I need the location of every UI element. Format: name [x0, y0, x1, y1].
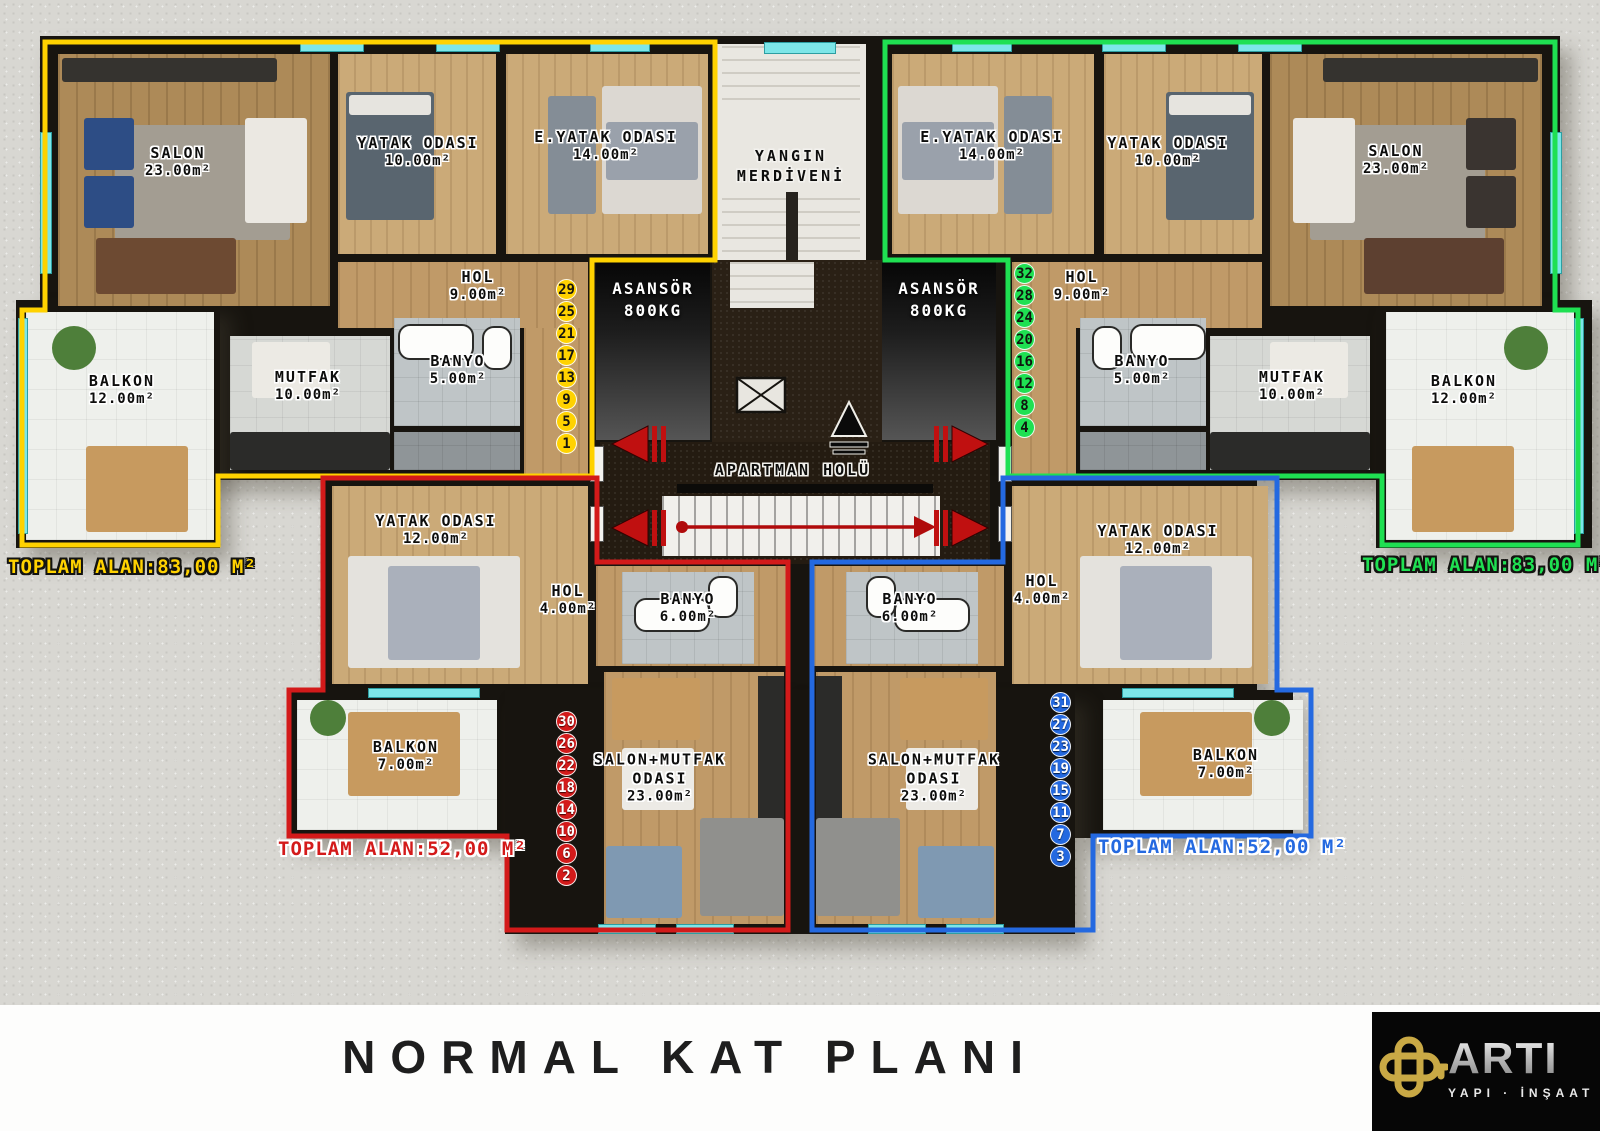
unit-number: 29 — [556, 279, 577, 300]
entry-tl — [394, 432, 520, 470]
unit-number: 7 — [1050, 824, 1071, 845]
room-name: SALON — [145, 144, 211, 163]
rug — [918, 846, 994, 918]
unit-number: 2 — [556, 865, 577, 886]
entry-tr — [1080, 432, 1206, 470]
unit-number: 10 — [556, 821, 577, 842]
floor-plan: SALON 23.00m² YATAK ODASI 10.00m² E.YATA… — [0, 0, 1600, 1131]
unit-stack-yellow: 29 25 21 17 13 9 5 1 — [556, 279, 577, 454]
room-area: 7.00m² — [373, 757, 439, 775]
room-name: YATAK ODASI — [1107, 134, 1228, 153]
pillow — [1169, 95, 1251, 115]
room-name: BALKON — [1431, 372, 1497, 391]
unit-number: 15 — [1050, 780, 1071, 801]
room-name: HOL — [1014, 572, 1071, 591]
room-area: 23.00m² — [145, 163, 211, 181]
stair-divider — [786, 192, 798, 262]
room-name: SALON+MUTFAK — [868, 751, 1000, 770]
label-banyo-tl: BANYO 5.00m² — [430, 352, 487, 388]
total-area-top-right: TOPLAM ALAN:83,00 M² — [1362, 554, 1600, 576]
room-area: 6.00m² — [660, 609, 717, 627]
room-name: YATAK ODASI — [375, 512, 496, 531]
label-hol-bl: HOL 4.00m² — [540, 582, 597, 618]
room-area: 4.00m² — [1014, 591, 1071, 609]
unit-number: 17 — [556, 345, 577, 366]
room-area: 10.00m² — [357, 153, 478, 171]
room-area: 23.00m² — [594, 788, 726, 806]
unit-number: 12 — [1014, 373, 1035, 394]
media-wall — [62, 58, 277, 82]
window — [1550, 132, 1562, 274]
toilet — [482, 326, 512, 370]
elevator-line2: 800KG — [898, 300, 979, 322]
window — [952, 40, 1012, 52]
room-area: 4.00m² — [540, 601, 597, 619]
armchair — [1466, 176, 1516, 228]
total-area-top-left: TOPLAM ALAN:83,00 M² — [8, 556, 257, 578]
unit-stack-red: 30 26 22 18 14 10 6 2 — [556, 711, 577, 886]
unit-number: 16 — [1014, 351, 1035, 372]
unit-number: 30 — [556, 711, 577, 732]
total-area-bottom-right: TOPLAM ALAN:52,00 M² — [1098, 836, 1347, 858]
armchair — [84, 176, 134, 228]
window — [598, 924, 656, 934]
unit-number: 13 — [556, 367, 577, 388]
room-name: YATAK ODASI — [357, 134, 478, 153]
unit-number: 5 — [556, 411, 577, 432]
room-area: 23.00m² — [868, 788, 1000, 806]
dining-table — [612, 678, 700, 740]
room-area: 10.00m² — [1107, 153, 1228, 171]
plant — [1504, 326, 1548, 370]
unit-number: 4 — [1014, 417, 1035, 438]
sofa — [96, 238, 236, 294]
dining-table — [245, 118, 307, 223]
page-title: NORMAL KAT PLANI — [0, 1030, 1380, 1084]
label-yatak-bl: YATAK ODASI 12.00m² — [375, 512, 496, 548]
kitchen-counter-bl — [758, 676, 784, 826]
unit-number: 25 — [556, 301, 577, 322]
room-name: MUTFAK — [1259, 368, 1325, 387]
label-banyo-tr: BANYO 5.00m² — [1114, 352, 1171, 388]
plant — [310, 700, 346, 736]
plant — [1254, 700, 1290, 736]
label-banyo-bl: BANYO 6.00m² — [660, 590, 717, 626]
label-yatak-br: YATAK ODASI 12.00m² — [1097, 522, 1218, 558]
plant — [52, 326, 96, 370]
label-lobby: APARTMAN HOLÜ — [715, 460, 871, 480]
logo-subtitle: YAPI · İNŞAAT — [1448, 1086, 1594, 1100]
label-mutfak-tl: MUTFAK 10.00m² — [275, 368, 341, 404]
room-name: YATAK ODASI — [1097, 522, 1218, 541]
unit-number: 6 — [556, 843, 577, 864]
balcony-table — [86, 446, 188, 532]
unit-number: 1 — [556, 433, 577, 454]
room-name: BANYO — [882, 590, 939, 609]
label-yatak-tl: YATAK ODASI 10.00m² — [357, 134, 478, 170]
unit-number: 22 — [556, 755, 577, 776]
room-area: 5.00m² — [1114, 371, 1171, 389]
unit-number: 20 — [1014, 329, 1035, 350]
window — [40, 132, 52, 274]
elevator-line1: ASANSÖR — [612, 278, 693, 300]
room-name: BALKON — [1193, 746, 1259, 765]
room-area: 14.00m² — [534, 147, 677, 165]
stair-treads-top — [722, 46, 860, 108]
window — [1238, 40, 1302, 52]
window — [1122, 688, 1234, 698]
rug — [606, 846, 682, 918]
label-balkon-bl: BALKON 7.00m² — [373, 738, 439, 774]
room-area: 6.00m² — [882, 609, 939, 627]
label-salon-tr: SALON 23.00m² — [1363, 142, 1429, 178]
label-salon-tl: SALON 23.00m² — [145, 144, 211, 180]
label-balkon-br: BALKON 7.00m² — [1193, 746, 1259, 782]
room-area: 14.00m² — [920, 147, 1063, 165]
armchair — [84, 118, 134, 170]
label-balkon-tr: BALKON 12.00m² — [1431, 372, 1497, 408]
room-area: 10.00m² — [275, 387, 341, 405]
company-logo: ARTI YAPI · İNŞAAT — [1372, 1012, 1600, 1131]
room-name: BANYO — [660, 590, 717, 609]
total-area-bottom-left: TOPLAM ALAN:52,00 M² — [278, 838, 527, 860]
window — [764, 42, 836, 54]
unit-stack-blue: 31 27 23 19 15 11 7 3 — [1050, 692, 1071, 867]
media-wall — [1323, 58, 1538, 82]
unit-number: 31 — [1050, 692, 1071, 713]
window — [946, 924, 1004, 934]
unit-number: 21 — [556, 323, 577, 344]
window — [1102, 40, 1166, 52]
room-area: 7.00m² — [1193, 765, 1259, 783]
unit-number: 11 — [1050, 802, 1071, 823]
lobby-text: APARTMAN HOLÜ — [715, 461, 871, 479]
room-name: SALON — [1363, 142, 1429, 161]
label-yatak-tr: YATAK ODASI 10.00m² — [1107, 134, 1228, 170]
window — [868, 924, 926, 934]
window — [436, 40, 500, 52]
fire-escape-line1: YANGIN — [737, 146, 845, 166]
label-mutfak-tr: MUTFAK 10.00m² — [1259, 368, 1325, 404]
room-name: BALKON — [89, 372, 155, 391]
room-name: SALON+MUTFAK — [594, 751, 726, 770]
stair-treads-lower — [730, 262, 814, 308]
unit-number: 32 — [1014, 263, 1035, 284]
unit-number: 26 — [556, 733, 577, 754]
kitchen-counter — [230, 432, 390, 470]
sofa — [816, 818, 900, 916]
armchair — [1466, 118, 1516, 170]
room-name: BALKON — [373, 738, 439, 757]
elevator-line2: 800KG — [612, 300, 693, 322]
room-area: 9.00m² — [1054, 287, 1111, 305]
window — [300, 40, 364, 52]
fire-escape-line2: MERDİVENİ — [737, 166, 845, 186]
door — [998, 506, 1012, 542]
sofa — [1364, 238, 1504, 294]
lobby-stairs — [662, 496, 940, 556]
label-fire-escape: YANGIN MERDİVENİ — [737, 146, 845, 187]
unit-number: 27 — [1050, 714, 1071, 735]
room-name: BANYO — [1114, 352, 1171, 371]
unit-number: 18 — [556, 777, 577, 798]
room-area: 12.00m² — [375, 531, 496, 549]
label-hol-tl: HOL 9.00m² — [450, 268, 507, 304]
room-name: MUTFAK — [275, 368, 341, 387]
window — [590, 40, 650, 52]
label-hol-tr: HOL 9.00m² — [1054, 268, 1111, 304]
unit-number: 9 — [556, 389, 577, 410]
door — [590, 506, 604, 542]
sofa — [700, 818, 784, 916]
label-eyatak-tr: E.YATAK ODASI 14.00m² — [920, 128, 1063, 164]
room-name: HOL — [1054, 268, 1111, 287]
door — [590, 446, 604, 482]
room-area: 9.00m² — [450, 287, 507, 305]
lobby-stair-edge — [677, 484, 933, 493]
unit-number: 24 — [1014, 307, 1035, 328]
unit-number: 19 — [1050, 758, 1071, 779]
unit-stack-green: 32 28 24 20 16 12 8 4 — [1014, 263, 1035, 438]
room-area: 10.00m² — [1259, 387, 1325, 405]
unit-number: 14 — [556, 799, 577, 820]
room-name: E.YATAK ODASI — [534, 128, 677, 147]
pillow — [349, 95, 431, 115]
room-name: ODASI — [868, 769, 1000, 788]
label-hol-br: HOL 4.00m² — [1014, 572, 1071, 608]
room-name: E.YATAK ODASI — [920, 128, 1063, 147]
logo-brand: ARTI — [1448, 1034, 1559, 1084]
unit-number: 3 — [1050, 846, 1071, 867]
label-salonmutfak-bl: SALON+MUTFAK ODASI 23.00m² — [594, 751, 726, 806]
label-eyatak-tl: E.YATAK ODASI 14.00m² — [534, 128, 677, 164]
room-name: HOL — [540, 582, 597, 601]
room-name: ODASI — [594, 769, 726, 788]
dining-table — [1293, 118, 1355, 223]
balcony-rail — [18, 318, 28, 534]
kitchen-counter — [1210, 432, 1370, 470]
door — [998, 446, 1012, 482]
label-salonmutfak-br: SALON+MUTFAK ODASI 23.00m² — [868, 751, 1000, 806]
kitchen-counter-br — [816, 676, 842, 826]
balcony-table — [1412, 446, 1514, 532]
blanket — [388, 566, 480, 660]
blanket — [1120, 566, 1212, 660]
room-area: 12.00m² — [1431, 391, 1497, 409]
label-elevator-left: ASANSÖR 800KG — [612, 278, 693, 323]
balcony-rail — [1574, 318, 1584, 534]
room-name: BANYO — [430, 352, 487, 371]
window — [676, 924, 734, 934]
room-area: 23.00m² — [1363, 161, 1429, 179]
label-balkon-tl: BALKON 12.00m² — [89, 372, 155, 408]
key-icon — [1378, 1034, 1448, 1108]
label-banyo-br: BANYO 6.00m² — [882, 590, 939, 626]
room-area: 12.00m² — [89, 391, 155, 409]
unit-number: 8 — [1014, 395, 1035, 416]
room-area: 12.00m² — [1097, 541, 1218, 559]
label-elevator-right: ASANSÖR 800KG — [898, 278, 979, 323]
unit-number: 23 — [1050, 736, 1071, 757]
dining-table — [900, 678, 988, 740]
elevator-line1: ASANSÖR — [898, 278, 979, 300]
unit-number: 28 — [1014, 285, 1035, 306]
window — [368, 688, 480, 698]
room-area: 5.00m² — [430, 371, 487, 389]
room-name: HOL — [450, 268, 507, 287]
